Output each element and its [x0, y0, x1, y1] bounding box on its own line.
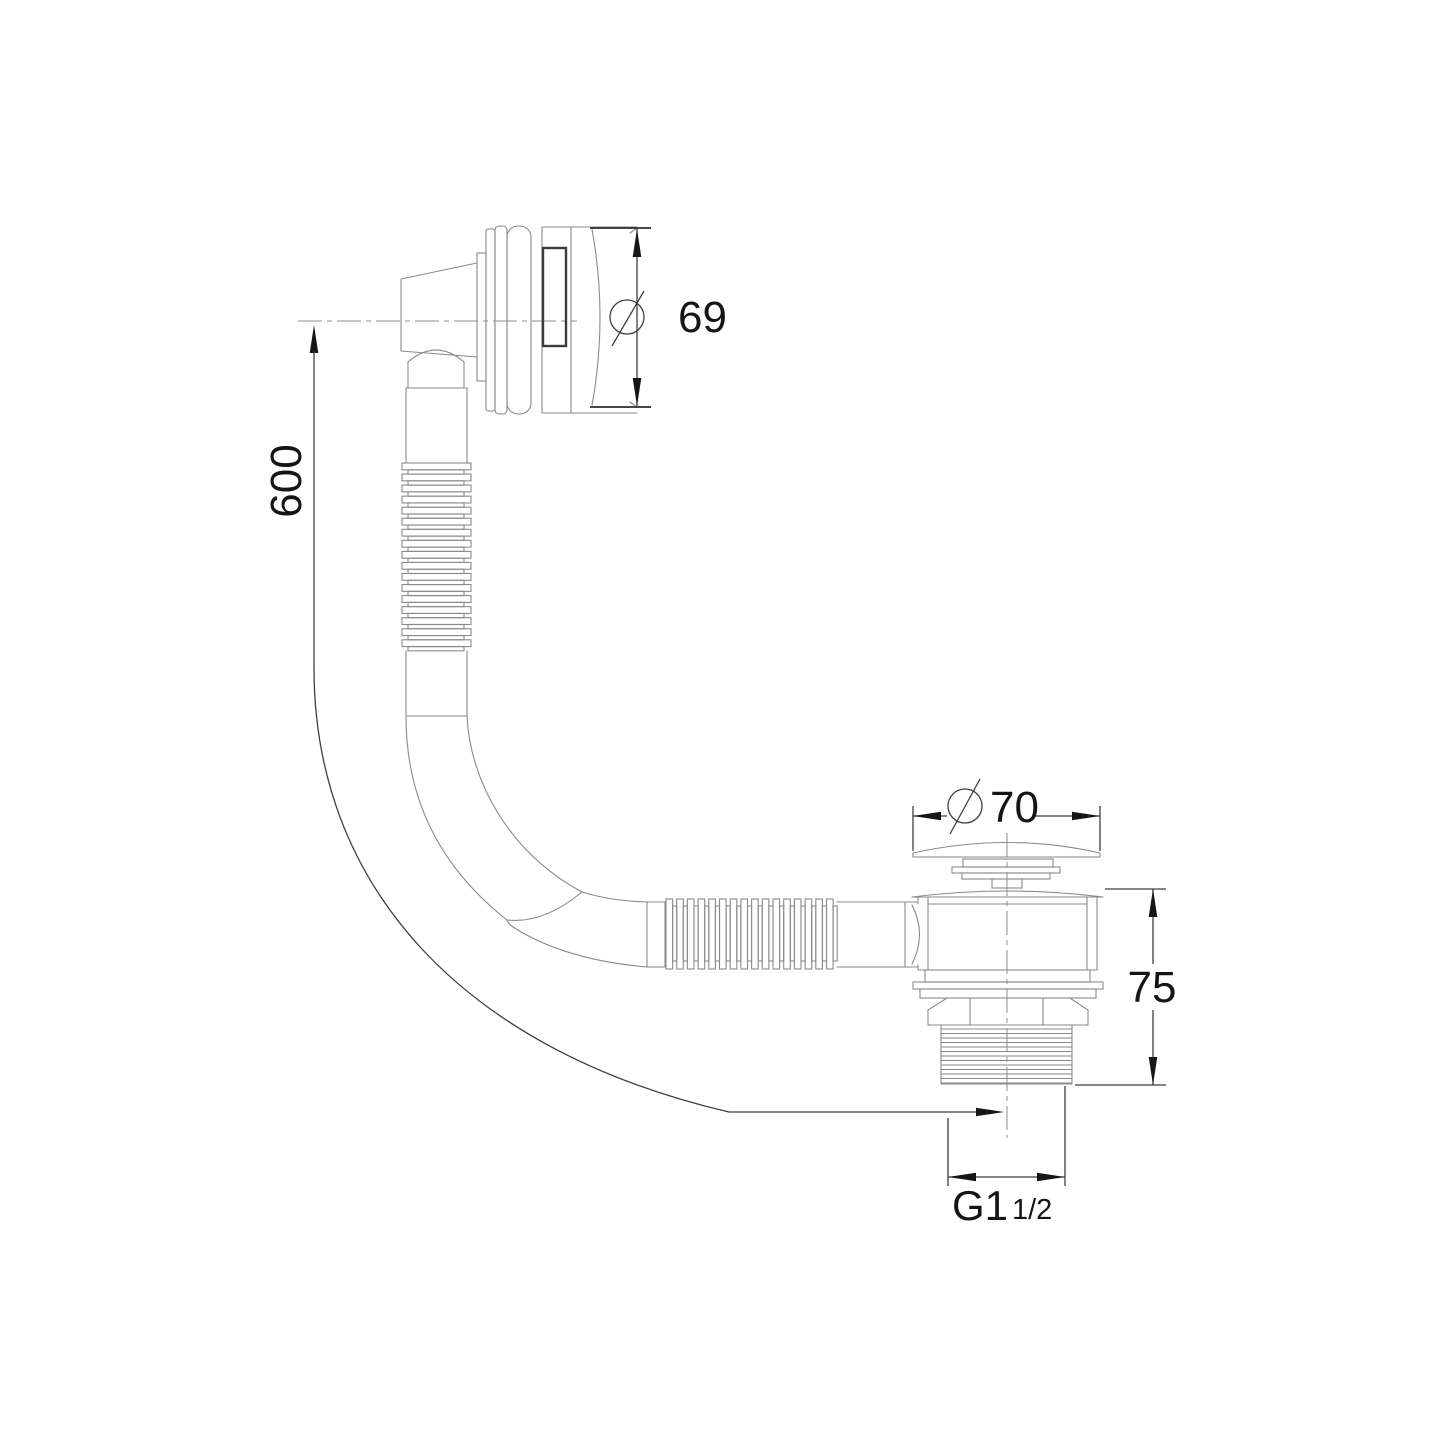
arrow-down-icon [1149, 1057, 1158, 1085]
overflow-spigot [401, 263, 477, 357]
hose-cuff [647, 902, 666, 967]
diameter-symbol-icon [610, 291, 644, 346]
waste-washer-2 [952, 867, 1060, 873]
dim-70-label: 70 [990, 783, 1039, 832]
arrow-up-icon [633, 229, 642, 257]
waste-backnut-lip [913, 982, 1103, 989]
hose-horizontal-plain-end [837, 902, 918, 967]
hose-vertical-corrugations [402, 463, 471, 651]
flexible-hose [402, 388, 920, 969]
dim-600-label: 600 [262, 444, 311, 517]
centerlines [298, 321, 1007, 1138]
arrow-up-icon [310, 325, 319, 353]
overflow-flange-plate-3 [495, 226, 507, 414]
dim-hose-length: 600 [262, 325, 1004, 1116]
dim-69-label: 69 [678, 293, 727, 342]
dim-thread-main-label: G1 [952, 1182, 1008, 1229]
waste-washer-1 [963, 859, 1053, 867]
technical-drawing: 69 600 70 75 G1 1/2 [0, 0, 1445, 1445]
hose-bend-seam-upper [507, 892, 582, 920]
overflow-flange-plate-1 [477, 253, 486, 381]
hose-bend-seam-tip [507, 920, 513, 927]
hose-bend-inner-edge [467, 716, 582, 892]
dim-waste-height: 75 [1075, 889, 1176, 1085]
hose-horizontal-bottom-edge [513, 927, 647, 967]
arrow-down-icon [633, 378, 642, 406]
dim-75-label: 75 [1128, 963, 1177, 1012]
hose-horizontal-corrugations [666, 899, 837, 969]
dim-69-extension-lines [590, 228, 651, 407]
hose-bend-outer-edge [406, 716, 507, 920]
hose-vertical-plain-lower [406, 651, 467, 716]
waste-washer-3 [962, 873, 1050, 879]
arrow-left-icon [913, 812, 941, 821]
arrow-right-icon [1037, 1173, 1065, 1182]
dim-overflow-diameter: 69 [590, 228, 727, 407]
waste-backnut-band [920, 989, 1096, 998]
drawing-canvas: 69 600 70 75 G1 1/2 [0, 0, 1445, 1445]
hose-socket-cuff-curve [912, 905, 920, 964]
hose-horizontal-top-edge [582, 892, 647, 902]
arrow-left-icon [948, 1173, 976, 1182]
overflow-washer [507, 226, 531, 414]
dim-600-leader-line [314, 351, 977, 1112]
overflow-gasket-section [543, 248, 566, 346]
arrow-up-icon [1149, 889, 1158, 917]
overflow-fitting [401, 226, 637, 414]
arrow-right-icon [1072, 812, 1100, 821]
overflow-flange-plate-2 [486, 229, 495, 411]
overflow-body [542, 227, 637, 413]
dim-thread-fraction-label: 1/2 [1012, 1194, 1052, 1226]
hose-vertical-plain-upper [406, 388, 467, 463]
waste-hex-nut [928, 998, 1088, 1025]
arrow-right-icon [976, 1108, 1004, 1117]
diameter-symbol-icon [948, 779, 982, 834]
overflow-cap-dome-curve [592, 229, 600, 405]
